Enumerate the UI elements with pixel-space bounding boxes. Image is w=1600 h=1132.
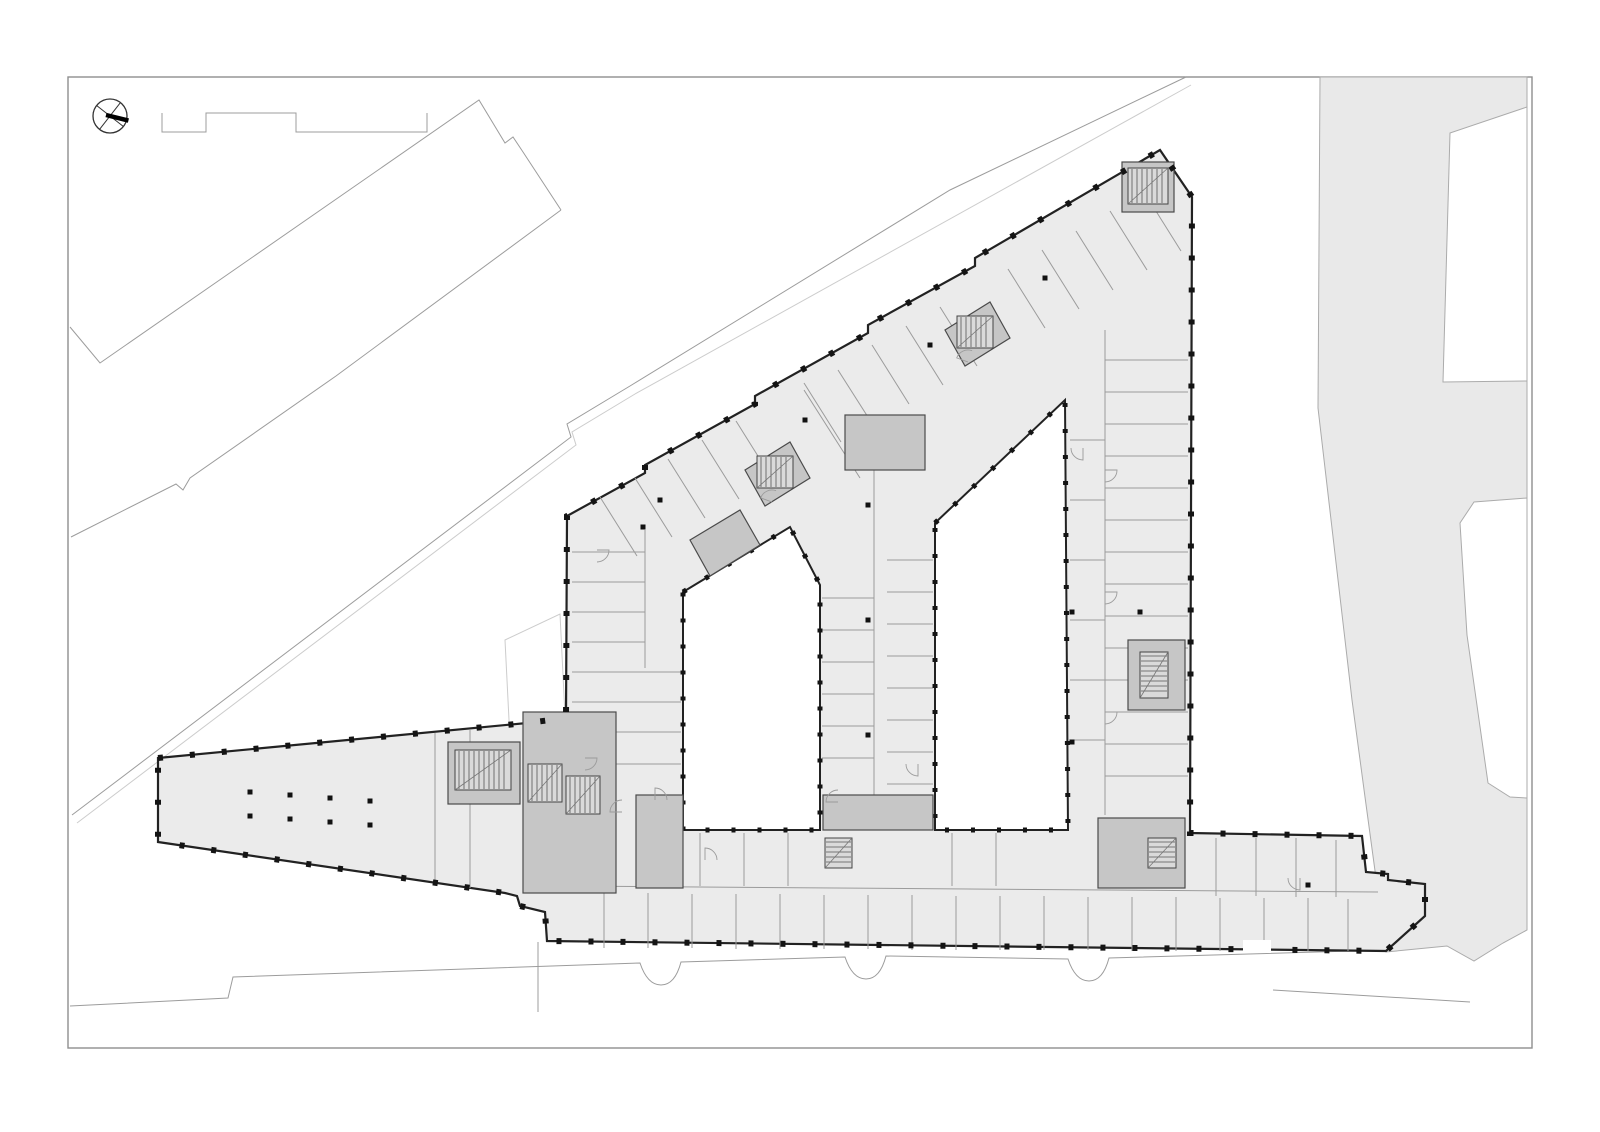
core-midbar-bottom: [823, 795, 933, 830]
core-westwing-bottom: [636, 795, 683, 888]
column: [641, 525, 646, 530]
column: [288, 793, 293, 798]
stair-junction-b: [566, 776, 600, 814]
column: [1070, 610, 1075, 615]
stair-rightwing-mid: [1140, 652, 1168, 698]
column: [1043, 276, 1048, 281]
stair-diagonal-a: [757, 456, 793, 488]
column: [866, 618, 871, 623]
column: [328, 796, 333, 801]
column: [248, 790, 253, 795]
floor-plan-page: [0, 0, 1600, 1132]
floor-plan-canvas: [0, 0, 1600, 1132]
column: [328, 820, 333, 825]
stair-midbar: [825, 838, 852, 868]
stair-rightwing-south: [1148, 838, 1176, 868]
column: [368, 823, 373, 828]
stair-left-wing: [455, 750, 511, 790]
column: [1070, 740, 1075, 745]
column: [803, 418, 808, 423]
core-midbar-top: [845, 415, 925, 470]
column: [658, 498, 663, 503]
column: [248, 814, 253, 819]
column: [288, 817, 293, 822]
entrance-recess: [1243, 940, 1271, 953]
street-cutout-upper-block: [1443, 107, 1527, 382]
column: [368, 799, 373, 804]
stair-junction-a: [528, 764, 562, 802]
column: [1138, 610, 1143, 615]
stair-ne-corner: [1128, 168, 1168, 204]
column: [866, 503, 871, 508]
column: [928, 343, 933, 348]
stair-diagonal-b: [957, 316, 993, 348]
column: [866, 733, 871, 738]
column: [1306, 883, 1311, 888]
